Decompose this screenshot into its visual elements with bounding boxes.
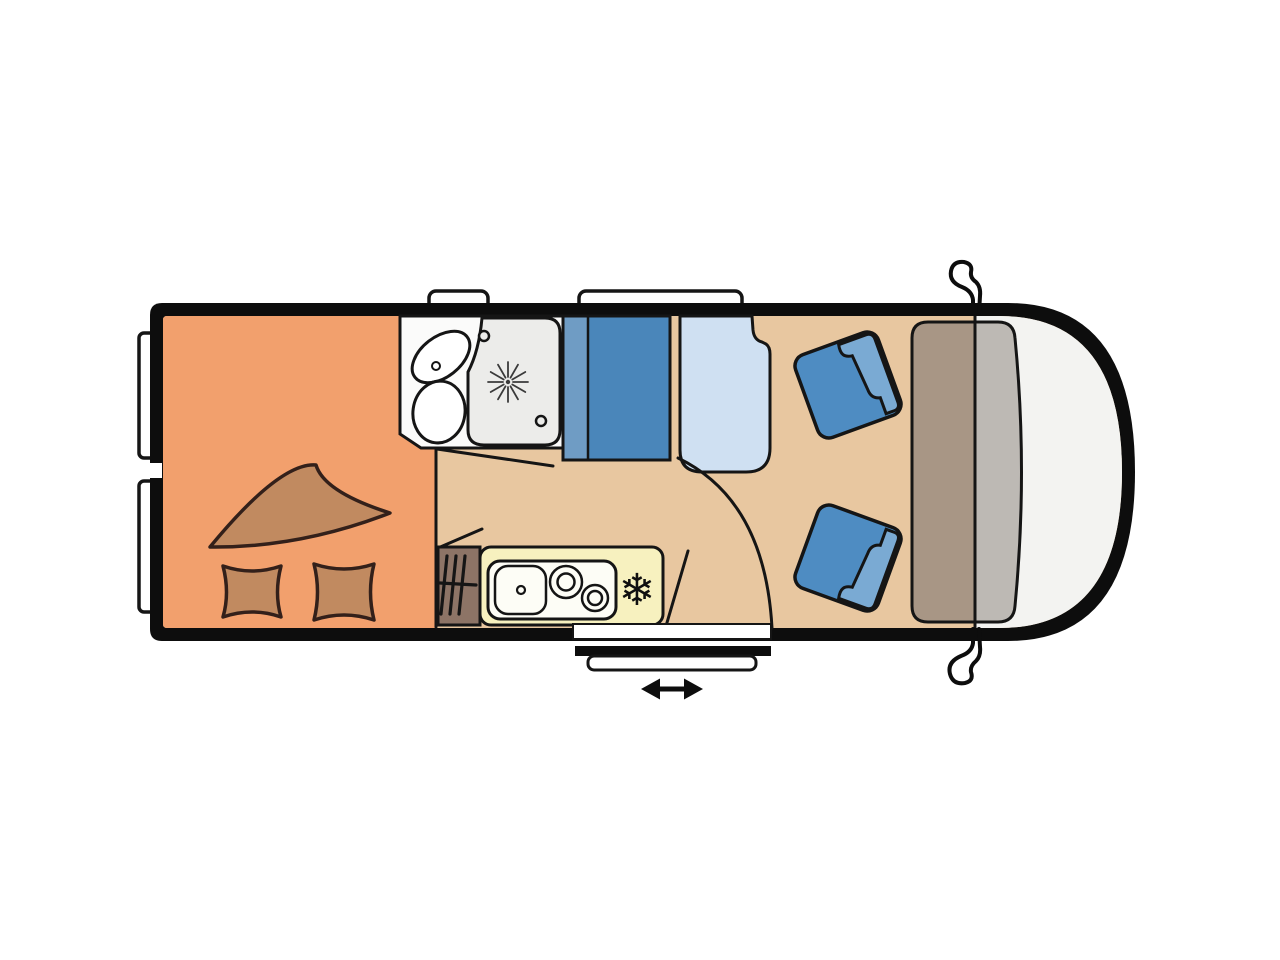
dashboard [912,322,1022,622]
tray-fitting-top [479,331,489,341]
hob-burner-small [582,585,608,611]
door-slide-arrow-icon [641,679,703,700]
entry-door [573,624,771,700]
entry-door-opening [573,624,771,639]
kitchen-block: ❄ [438,547,663,625]
entry-step [588,656,756,670]
floorplan-canvas: ❄ [0,0,1280,960]
washbasin-drain [432,362,440,370]
hob-burner-large [550,566,582,598]
floorplan-page: ❄ [0,0,1280,960]
bed-pillow-left [223,566,281,617]
rear-door-split [149,463,162,478]
bed-pillow-right [314,564,374,620]
tray-fitting-bottom [536,416,546,426]
wardrobe [563,316,670,460]
bench-seat [680,316,770,472]
bathroom [400,316,563,448]
fridge-icon: ❄ [619,565,656,616]
